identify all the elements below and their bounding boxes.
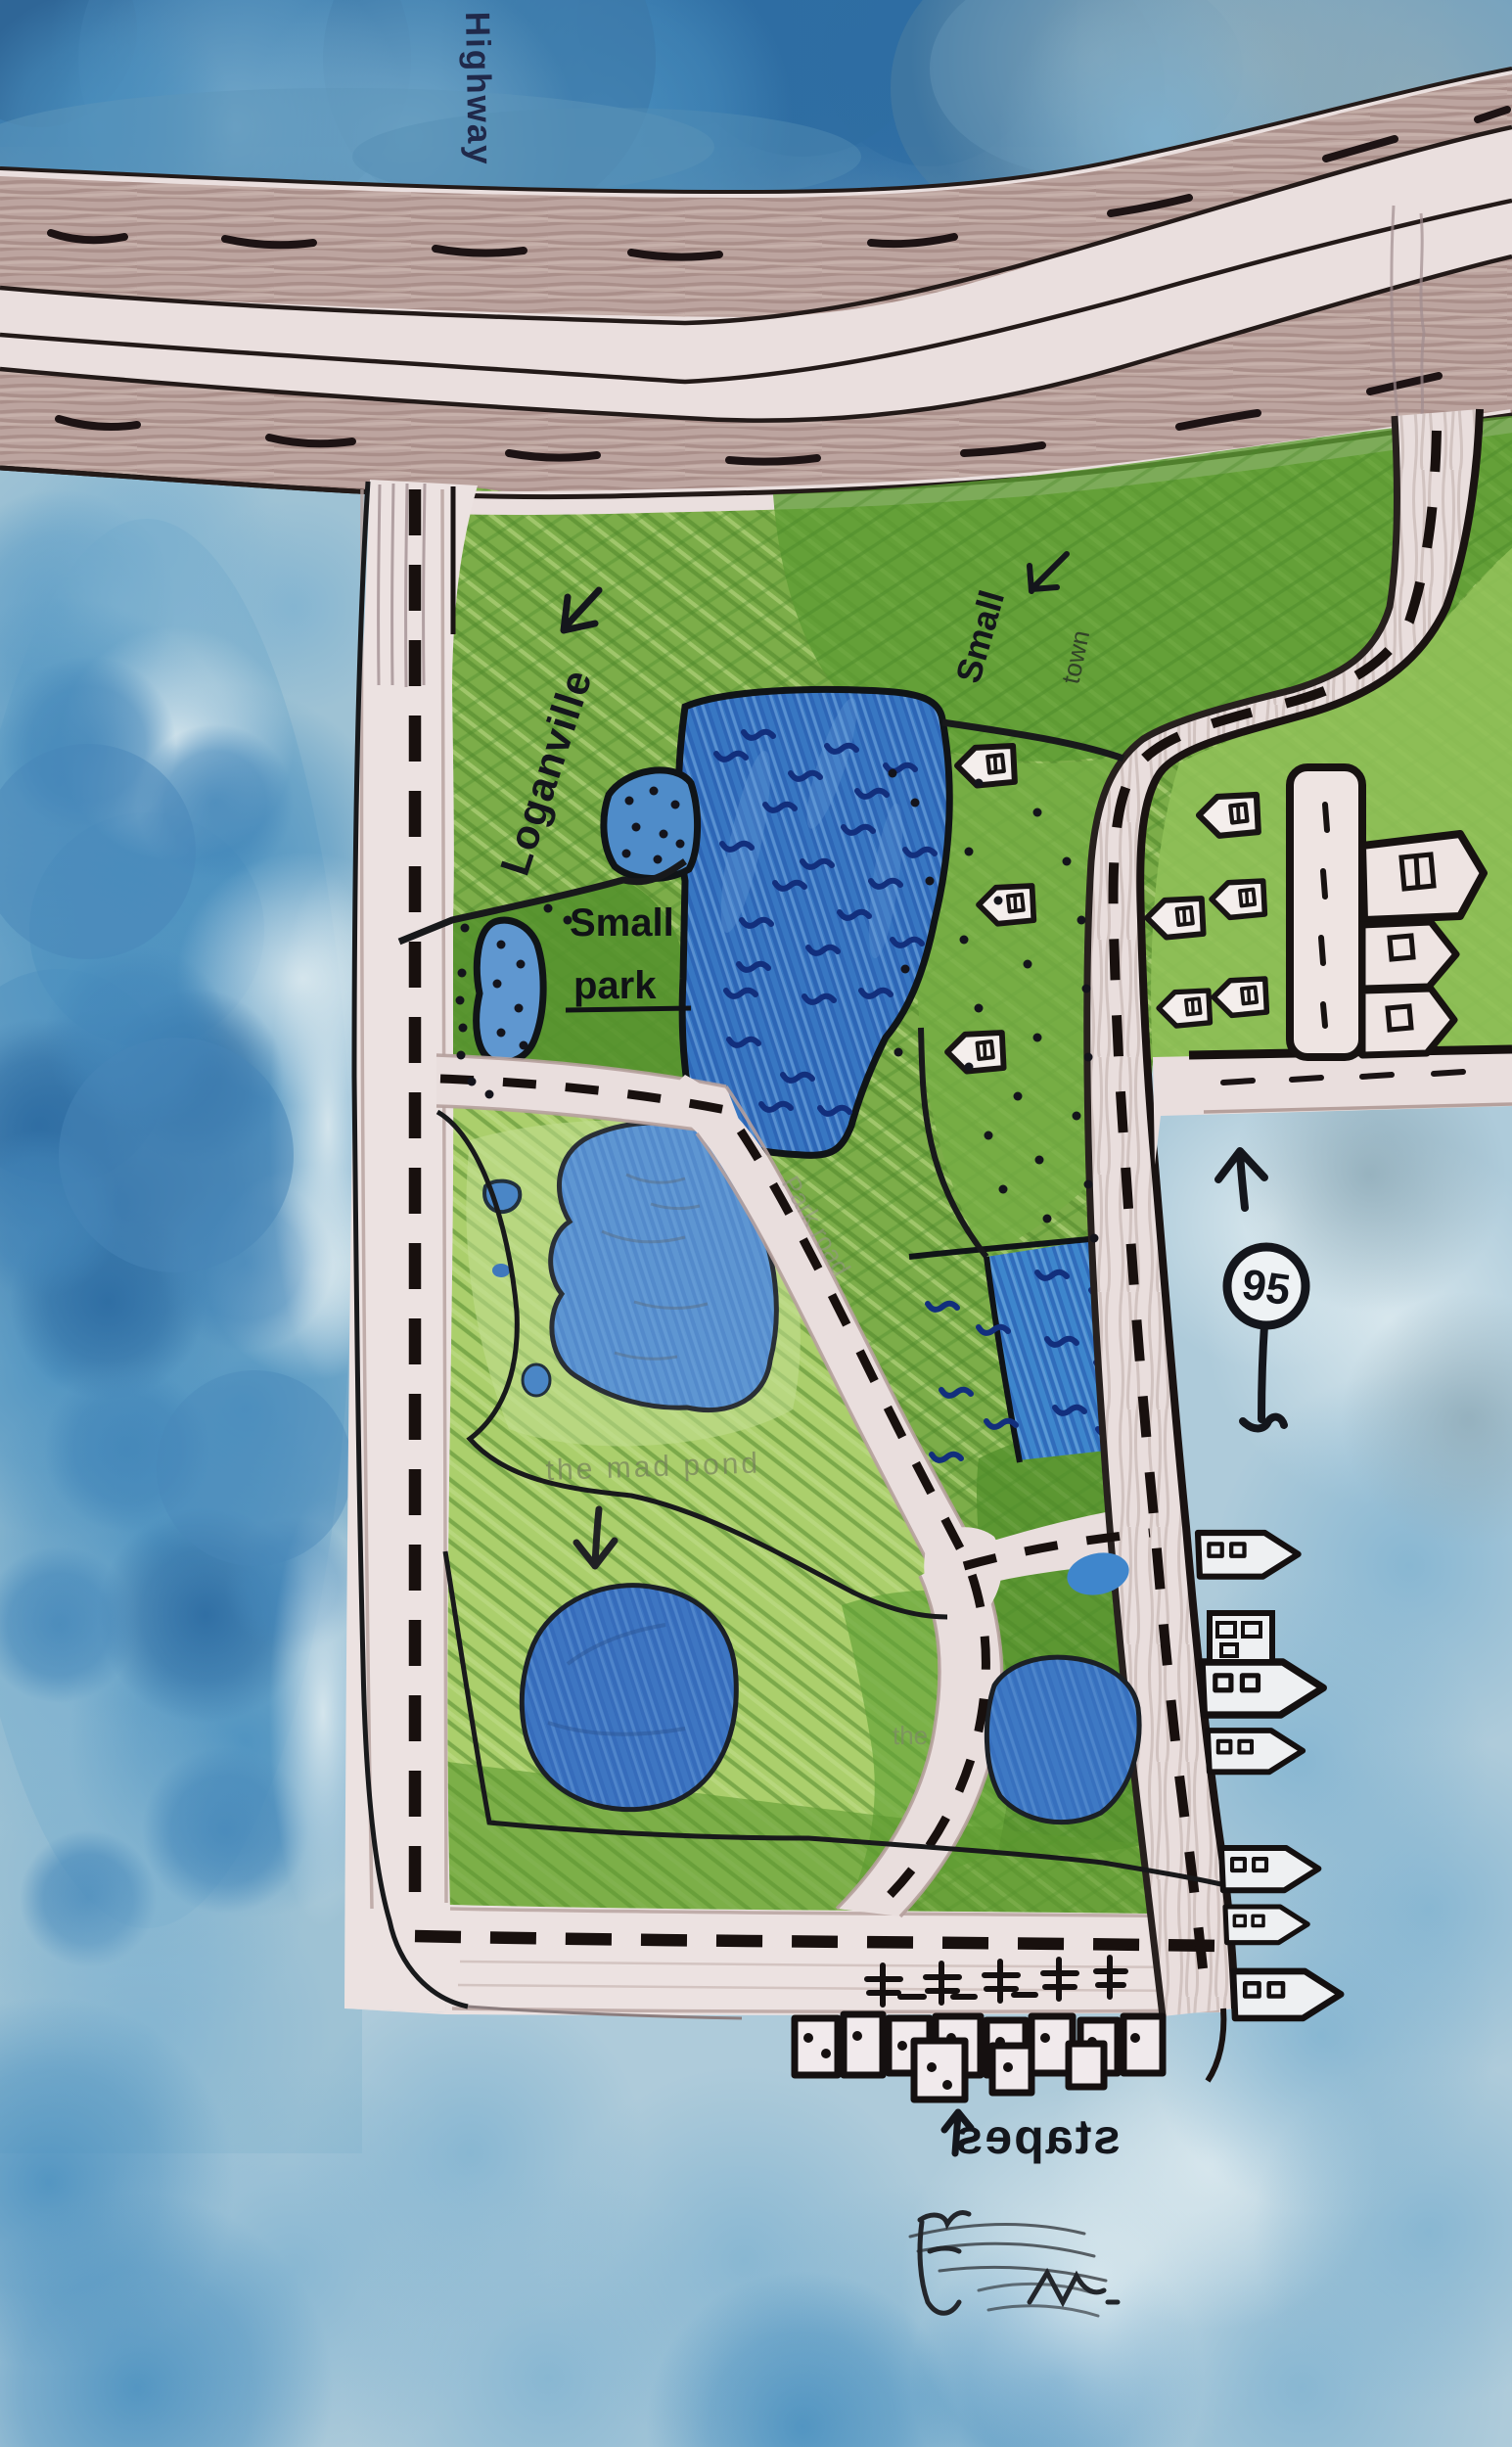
svg-text:the: the (893, 1721, 928, 1750)
svg-text:95: 95 (1239, 1261, 1293, 1315)
svg-text:Small: Small (570, 901, 674, 945)
svg-text:park: park (573, 964, 657, 1007)
svg-text:stapes: stapes (954, 2109, 1121, 2164)
svg-text:Highway: Highway (458, 11, 499, 166)
